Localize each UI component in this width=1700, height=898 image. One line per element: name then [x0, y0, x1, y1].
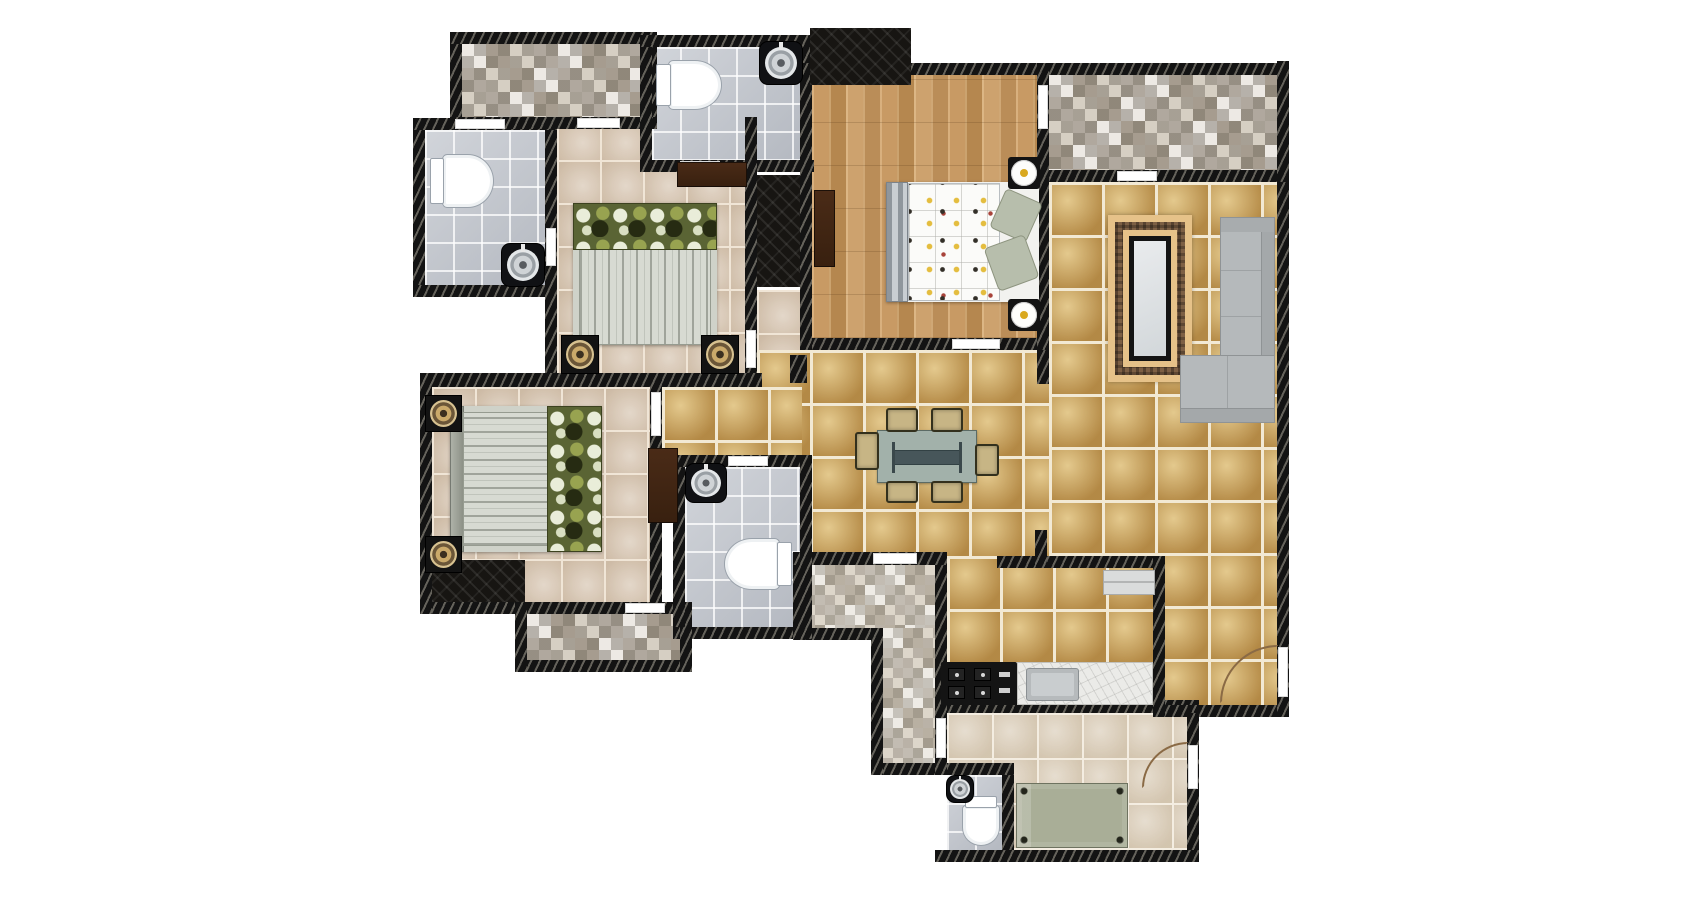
knob-icon: [999, 688, 1010, 693]
sofa-vertical: [1220, 217, 1275, 363]
toilet-tank: [656, 64, 671, 106]
wall-utility-bottom: [935, 850, 1199, 862]
hall-floor-west: [662, 387, 802, 462]
passage-floor-v: [883, 628, 935, 763]
wardrobe-master: [814, 190, 835, 267]
nightstand-bedroom3-bottom: [426, 537, 461, 572]
wall-master-bottom: [800, 338, 1049, 350]
wall-right-main: [1277, 182, 1289, 717]
bed-pillows: [547, 406, 602, 552]
lamp-icon: [1011, 302, 1037, 328]
wall-dressing-top: [450, 32, 657, 44]
door-passage: [873, 553, 917, 564]
faucet-icon: [959, 776, 961, 781]
wall-stub-hall: [1037, 350, 1049, 384]
sofa-chaise: [1180, 355, 1275, 423]
frame-inner: [1129, 236, 1171, 361]
bed-blanket: [579, 247, 711, 345]
sink-bath2: [760, 42, 802, 84]
dining-chair-6: [975, 444, 999, 476]
kitchen-shelf: [1103, 570, 1155, 595]
bed-headboard: [886, 182, 908, 302]
wall-balcony1-bottom: [1037, 170, 1289, 182]
burner-icon: [974, 668, 991, 681]
wall-bath2-left: [640, 47, 652, 160]
wardrobe-bedroom3: [648, 448, 678, 523]
wall-kitchen-top: [997, 556, 1165, 568]
dining-chair-4: [931, 481, 963, 503]
corridor-floor: [757, 290, 800, 352]
wall-passage-left-lower: [871, 628, 883, 775]
balcony1-floor: [1049, 73, 1277, 170]
wall-utility-bath-right: [1002, 775, 1014, 850]
wall-master-left: [800, 63, 812, 350]
toilet-bath3: [724, 538, 792, 590]
frame-mat: [1123, 230, 1177, 367]
dining-chair-2: [931, 408, 963, 432]
sink-utility-bath: [947, 776, 973, 802]
nightstand-master-top: [1008, 157, 1040, 189]
toilet-bowl: [962, 805, 1000, 846]
wall-bath1-bottom: [413, 285, 557, 297]
door-master-balcony: [1038, 85, 1048, 129]
sink-bath3: [686, 464, 726, 502]
toilet-tank: [430, 158, 444, 203]
stove-counter: [941, 662, 1017, 705]
dressing-floor: [462, 44, 645, 117]
bed-utility: [1016, 783, 1128, 848]
wall-bottom-right: [1153, 705, 1289, 717]
sink-bath1: [502, 244, 544, 286]
frame-center: [1134, 241, 1166, 356]
window-bath1: [455, 119, 505, 129]
sofa-back: [1181, 408, 1274, 422]
toilet-bowl: [668, 60, 722, 110]
wall-stub-hall-left: [790, 355, 807, 383]
door-utility-right: [1188, 745, 1198, 789]
faucet-icon: [779, 42, 782, 50]
wall-balcony1-right: [1277, 61, 1289, 182]
passage-floor-h: [805, 565, 935, 628]
toilet-bowl: [724, 538, 780, 590]
wall-bath1-left: [413, 130, 425, 285]
bed-blanket: [463, 412, 548, 546]
wall-balcony2-left: [515, 602, 527, 672]
wall-stub-kitchen: [1035, 530, 1047, 568]
lamp-icon: [430, 400, 457, 427]
door-utility-passage: [936, 718, 946, 758]
dining-chair-5: [855, 432, 879, 470]
sink-basin: [950, 779, 970, 799]
bed-bedroom3: [450, 406, 602, 552]
door-master: [952, 339, 1000, 349]
nightstand-master-bottom: [1008, 299, 1040, 331]
door-living-right: [1278, 647, 1288, 697]
wall-bath3-bottom: [673, 627, 812, 639]
wall-passage-top: [793, 552, 947, 565]
burner-icon: [948, 668, 965, 681]
wardrobe-bedroom2: [677, 162, 747, 187]
nightstand-bedroom2-right: [702, 336, 738, 373]
sofa-back: [1261, 218, 1274, 362]
nightstand-bedroom2-left: [562, 336, 598, 373]
frame-border: [1115, 222, 1185, 375]
faucet-icon: [704, 464, 707, 471]
nightstand-bedroom3-top: [426, 396, 461, 431]
wall-passage-left-upper: [793, 565, 805, 640]
bed-bedroom2: [573, 203, 717, 345]
door-balcony1: [1117, 171, 1157, 181]
dining-chair-1: [886, 408, 918, 432]
wall-bedrooms-divider: [420, 373, 762, 387]
door-bedroom2: [746, 330, 756, 368]
kitchen-counter: [1017, 662, 1153, 705]
burner-icon: [974, 686, 991, 699]
toilet-tank: [777, 542, 792, 586]
sink-basin: [507, 249, 539, 281]
dining-table: [877, 430, 977, 483]
kitchen-sink: [1026, 668, 1079, 701]
closet-corridor: [757, 175, 800, 287]
bed-mattress: [908, 183, 1000, 301]
sink-basin: [691, 469, 721, 498]
toilet-bath1: [430, 154, 494, 208]
floor-plan: [0, 0, 1700, 898]
balcony2-floor: [527, 614, 680, 660]
toilet-utility-bath: [962, 796, 1000, 846]
wall-balcony2-bottom: [515, 660, 692, 672]
toilet-bowl: [442, 154, 494, 208]
bed-master: [886, 182, 1039, 302]
door-bedroom3: [651, 392, 661, 436]
lamp-icon: [566, 340, 594, 369]
door-bath1: [546, 228, 556, 266]
wall-dressing-left: [450, 44, 462, 117]
door-dressing-bedroom2: [577, 118, 620, 128]
knob-icon: [999, 672, 1010, 677]
toilet-bath2: [656, 60, 722, 110]
dining-chair-3: [886, 481, 918, 503]
faucet-icon: [521, 244, 524, 252]
door-bath3: [728, 456, 768, 466]
burner-icon: [948, 686, 965, 699]
lamp-icon: [430, 541, 457, 568]
table-runner: [893, 450, 962, 464]
door-balcony2: [625, 603, 665, 613]
closet-entry: [810, 28, 911, 85]
bed-pillows: [573, 203, 717, 250]
lamp-icon: [1011, 160, 1037, 186]
lamp-icon: [706, 340, 734, 369]
sink-basin: [765, 47, 797, 79]
